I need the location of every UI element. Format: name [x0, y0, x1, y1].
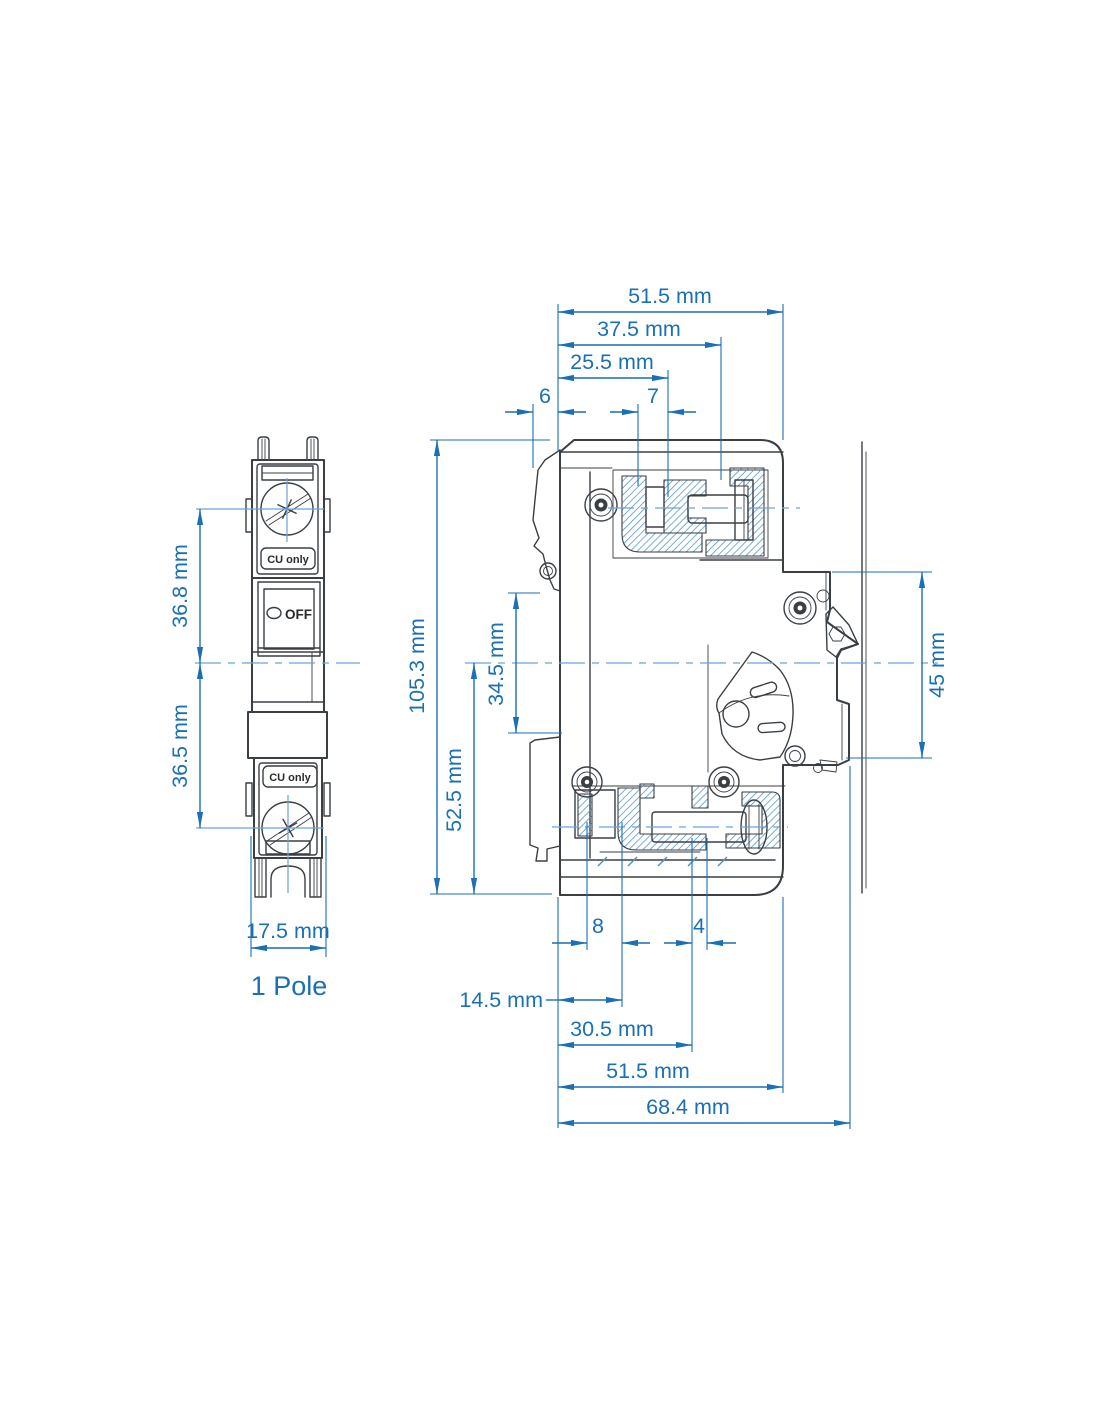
dim-top-37-5: 37.5 mm — [597, 317, 681, 341]
dim-bottom-30-5: 30.5 mm — [570, 1017, 654, 1041]
drawing-page: CU only OFF CU only — [0, 0, 1100, 1422]
screw-icon — [709, 767, 739, 797]
dim-bottom-4: 4 — [693, 914, 705, 938]
dim-top-25-5: 25.5 mm — [570, 350, 654, 374]
din-rail-claw — [785, 607, 858, 773]
front-upper-terminal: CU only — [246, 460, 330, 578]
side-centerlines — [465, 508, 938, 827]
dim-bottom-8: 8 — [592, 914, 604, 938]
cu-only-label-top: CU only — [267, 554, 309, 566]
dim-bottom-14-5: 14.5 mm — [459, 988, 543, 1012]
off-symbol-icon — [267, 608, 281, 619]
dim-left-34-5: 34.5 mm — [484, 622, 508, 706]
din-release-disc — [717, 652, 793, 760]
dim-front-width: 17.5 mm — [246, 919, 330, 943]
screw-icon — [572, 767, 602, 797]
dim-top-7: 7 — [647, 384, 659, 408]
dim-bottom-68-4: 68.4 mm — [646, 1095, 730, 1119]
front-view: CU only OFF CU only — [168, 437, 360, 1001]
side-dimensions-top: 51.5 mm 37.5 mm 25.5 mm 6 7 — [505, 284, 783, 497]
front-centerlines — [195, 478, 360, 893]
side-upper-terminal-section — [613, 468, 768, 558]
side-dimensions-left: 105.3 mm 52.5 mm 34.5 mm — [405, 440, 562, 894]
cu-only-label-bottom: CU only — [269, 772, 311, 784]
side-lower-terminal-section — [572, 784, 785, 854]
dim-left-52-5: 52.5 mm — [442, 748, 466, 832]
dim-front-upper-height: 36.8 mm — [168, 544, 192, 628]
bottom-hatch-ticks — [598, 857, 727, 866]
side-inner-structure — [560, 442, 866, 893]
pole-count-label: 1 Pole — [251, 971, 328, 1001]
front-toggle-section: OFF — [252, 578, 324, 712]
side-view: 51.5 mm 37.5 mm 25.5 mm 6 7 105.3 mm 52.… — [405, 284, 949, 1129]
dim-front-lower-height: 36.5 mm — [168, 704, 192, 788]
screw-icon — [585, 489, 617, 521]
dim-right-45: 45 mm — [925, 632, 949, 698]
dim-bottom-51-5: 51.5 mm — [606, 1059, 690, 1083]
technical-drawing: CU only OFF CU only — [0, 0, 1100, 1422]
front-top-terminal-pins — [258, 437, 318, 460]
off-label: OFF — [285, 607, 312, 622]
side-lower-left-flange — [530, 737, 560, 861]
dim-top-6: 6 — [539, 384, 551, 408]
side-dimensions-bottom: 8 4 14.5 mm 30.5 mm 51.5 mm 68.4 mm — [459, 766, 850, 1129]
dim-top-51-5: 51.5 mm — [628, 284, 712, 308]
dim-left-105-3: 105.3 mm — [405, 618, 429, 714]
screw-icon — [784, 592, 816, 624]
